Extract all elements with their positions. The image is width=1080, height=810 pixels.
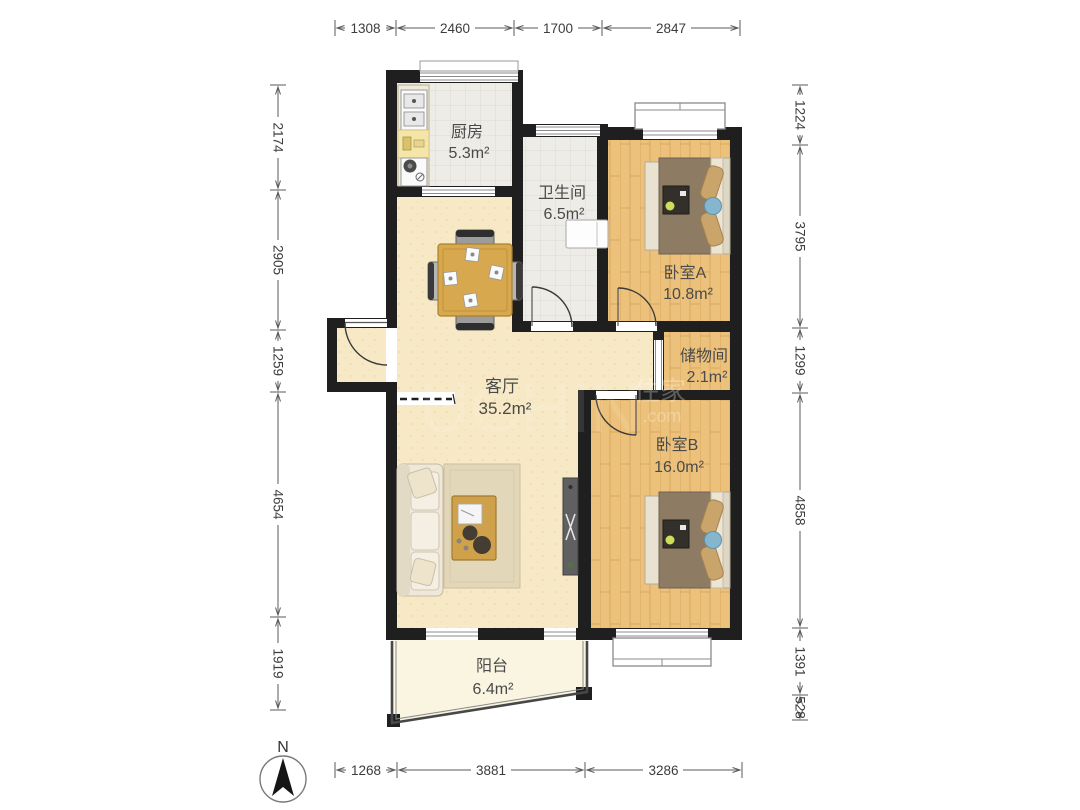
bathroom-label: 卫生间 <box>538 184 586 202</box>
bedroom-a-label: 卧室A <box>664 264 707 282</box>
bedroom-b-area: 16.0m² <box>654 459 704 476</box>
north-arrow-icon <box>272 758 294 796</box>
tv-panel <box>563 478 578 575</box>
dim-left-0: 2174 <box>271 122 286 153</box>
watermark-domain: .com <box>642 406 681 426</box>
dim-bottom-2: 3286 <box>648 763 678 778</box>
dimension-bottom: 1268 3881 3286 <box>335 762 742 778</box>
dim-left-1: 2905 <box>271 245 286 275</box>
dim-left-2: 1259 <box>271 346 286 376</box>
dimension-top: 1308 2460 1700 2847 <box>335 20 740 36</box>
floor-plan-page: UCHIN 住家 .com 厨房 5.3m² 卫生间 6.5m² 卧室A 10.… <box>0 0 1080 810</box>
compass-label: N <box>277 739 289 756</box>
storage-area: 2.1m² <box>687 369 729 386</box>
coffee-table <box>452 496 496 560</box>
bedroom-a-area: 10.8m² <box>663 286 713 303</box>
living-label: 客厅 <box>485 377 519 396</box>
dim-right-0: 1224 <box>793 100 808 131</box>
kitchen-area: 5.3m² <box>449 145 491 162</box>
dim-left-3: 4654 <box>271 489 286 520</box>
floor-plan: UCHIN 住家 .com 厨房 5.3m² 卫生间 6.5m² 卧室A 10.… <box>0 0 1080 810</box>
dim-top-3: 2847 <box>656 21 686 36</box>
dim-right-4: 1391 <box>793 646 808 676</box>
kitchen-counter <box>398 85 429 186</box>
living-area: 35.2m² <box>479 399 532 418</box>
sofa <box>397 464 443 596</box>
dim-right-3: 4858 <box>793 495 808 525</box>
bed-b <box>645 492 730 588</box>
dim-bottom-0: 1268 <box>351 763 381 778</box>
bedroom-b-label: 卧室B <box>656 436 699 454</box>
bathroom-area: 6.5m² <box>544 206 586 223</box>
kitchen-bay-sill <box>420 61 518 71</box>
dim-left-4: 1919 <box>271 648 286 678</box>
dim-right-5: 528 <box>793 696 808 719</box>
dimension-left: 2174 2905 1259 4654 1919 <box>270 85 286 710</box>
compass: N <box>260 739 306 802</box>
dim-right-1: 3795 <box>793 221 808 251</box>
balcony-area: 6.4m² <box>473 681 515 698</box>
dining-set <box>428 230 522 330</box>
dim-right-2: 1299 <box>793 345 808 375</box>
storage-label: 储物间 <box>680 347 728 365</box>
dimension-right: 1224 3795 1299 4858 1391 528 <box>792 85 808 720</box>
entry-floor <box>337 328 386 382</box>
dim-bottom-1: 3881 <box>476 763 506 778</box>
kitchen-label: 厨房 <box>451 123 483 141</box>
dim-top-0: 1308 <box>350 21 380 36</box>
balcony-label: 阳台 <box>476 657 508 675</box>
dim-top-1: 2460 <box>440 21 470 36</box>
bed-a <box>645 158 730 254</box>
dim-top-2: 1700 <box>543 21 573 36</box>
bathroom-washer <box>566 220 608 248</box>
watermark-cjk: 住家 <box>634 376 686 406</box>
